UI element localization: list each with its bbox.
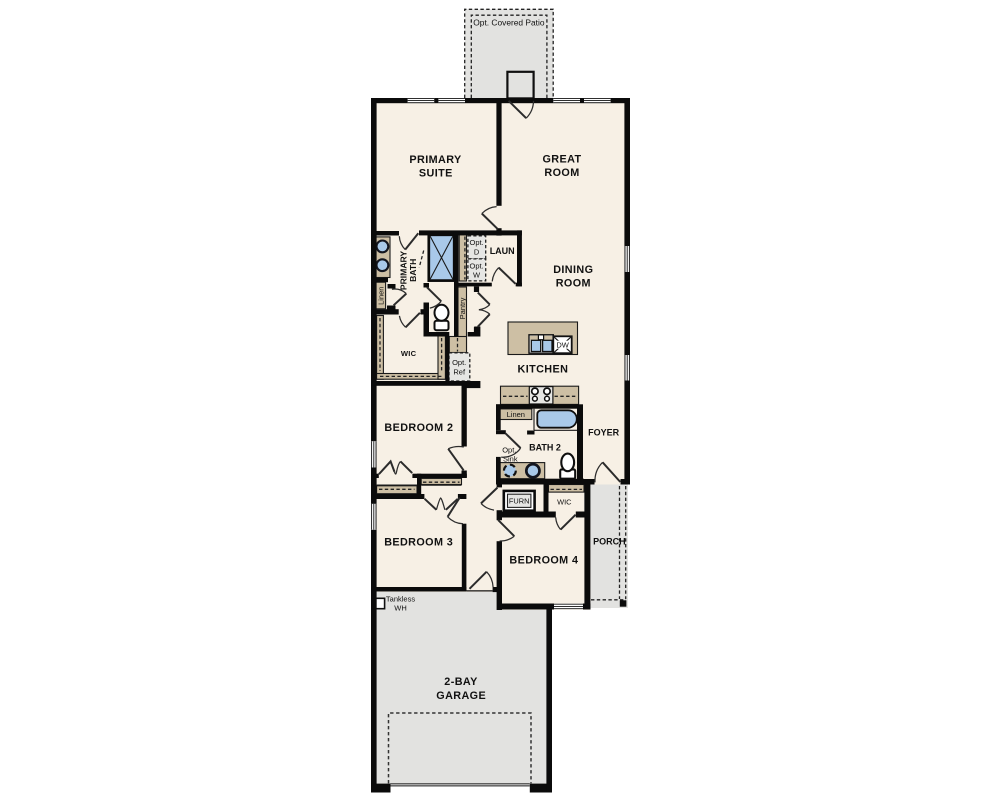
svg-text:BATH 2: BATH 2 [529,442,561,452]
svg-text:Linen: Linen [507,410,525,419]
svg-text:Pantry: Pantry [458,297,467,319]
svg-text:WIC: WIC [401,349,417,358]
svg-text:Tankless: Tankless [386,594,415,603]
svg-text:BATH: BATH [408,259,418,282]
svg-text:FURN: FURN [509,497,530,506]
svg-text:WH: WH [394,603,407,612]
svg-text:BEDROOM 2: BEDROOM 2 [384,422,453,434]
svg-text:Opt.: Opt. [502,446,516,455]
svg-text:BEDROOM 3: BEDROOM 3 [384,536,453,548]
svg-text:ROOM: ROOM [544,167,579,179]
svg-text:PRIMARY: PRIMARY [409,154,462,166]
svg-text:SUITE: SUITE [419,167,453,179]
svg-text:LAUN: LAUN [490,246,515,256]
svg-text:GARAGE: GARAGE [436,690,486,702]
svg-text:DINING: DINING [553,264,593,276]
svg-text:GREAT: GREAT [543,154,582,166]
svg-text:WIC: WIC [557,498,572,507]
svg-text:D: D [474,248,480,257]
svg-text:FOYER: FOYER [588,427,620,437]
svg-text:DW: DW [556,341,569,350]
svg-text:Opt. Covered Patio: Opt. Covered Patio [473,18,545,28]
svg-text:PRIMARY: PRIMARY [399,251,409,291]
svg-text:BEDROOM 4: BEDROOM 4 [509,555,578,567]
svg-text:ROOM: ROOM [556,278,591,290]
svg-text:2-BAY: 2-BAY [444,676,478,688]
svg-text:Linen: Linen [376,287,385,305]
svg-text:PORCH: PORCH [593,537,626,547]
svg-text:W: W [473,270,481,279]
svg-text:Ref: Ref [453,368,466,377]
svg-text:Opt.: Opt. [452,358,466,367]
svg-text:Opt.: Opt. [470,261,484,270]
svg-text:Opt.: Opt. [470,238,484,247]
svg-text:Sink: Sink [503,455,518,464]
svg-text:KITCHEN: KITCHEN [518,364,569,376]
